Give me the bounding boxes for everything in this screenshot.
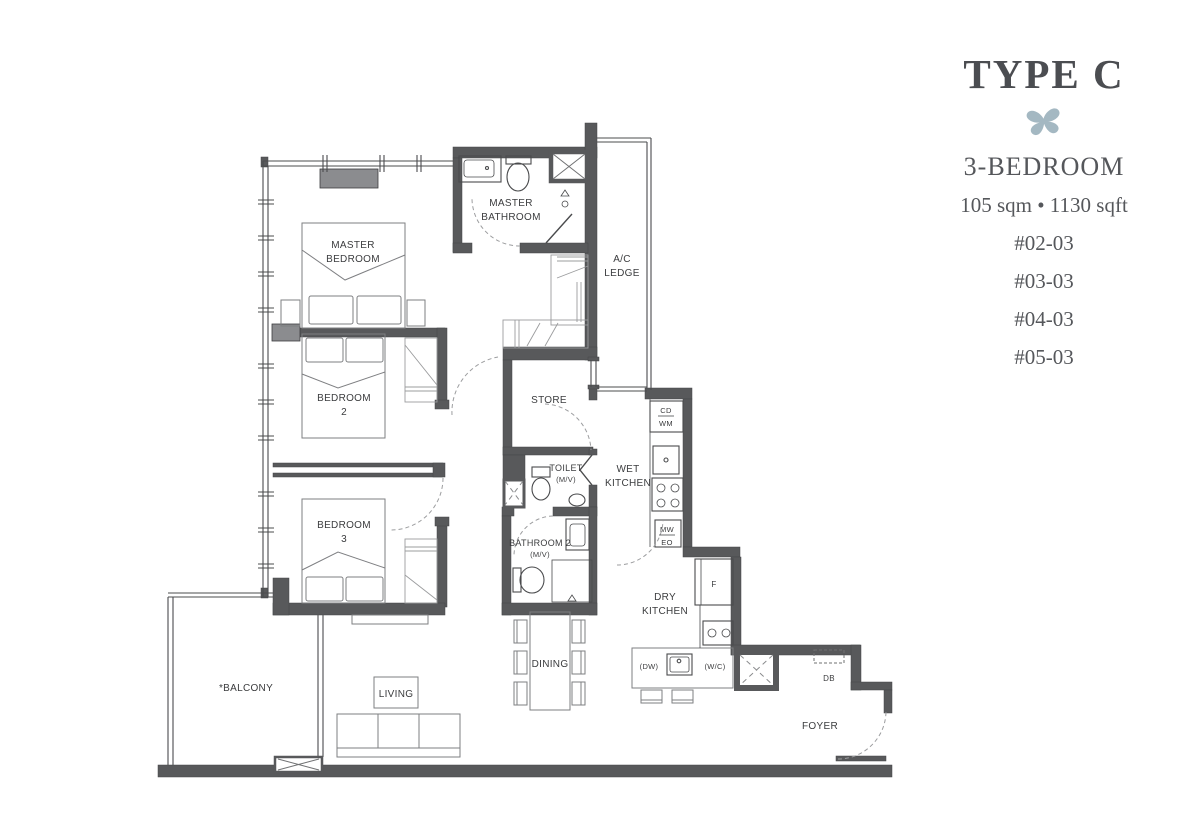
unit-number: #02-03	[948, 231, 1140, 256]
label-foyer: FOYER	[802, 721, 838, 732]
label-store: STORE	[531, 395, 567, 406]
label-bedroom3: BEDROOM	[317, 520, 371, 531]
svg-text:2: 2	[341, 407, 347, 418]
label-balcony: *BALCONY	[219, 683, 273, 694]
floor-plan-page: MASTER BEDROOM MASTER BATHROOM A/C LEDGE…	[0, 0, 1200, 840]
sofa	[337, 714, 460, 757]
label-wet-kitchen: WET	[616, 464, 639, 475]
unit-number: #05-03	[948, 345, 1140, 370]
wet-kitchen-door-arc	[617, 521, 663, 565]
svg-text:LEDGE: LEDGE	[604, 268, 639, 279]
svg-text:(M/V): (M/V)	[556, 475, 576, 484]
bedroom2-wardrobe	[405, 338, 437, 402]
label-toilet: TOILET	[549, 463, 582, 473]
svg-text:KITCHEN: KITCHEN	[642, 606, 688, 617]
label-fridge: F	[711, 580, 716, 589]
label-dining: DINING	[532, 659, 569, 670]
label-db: DB	[823, 674, 835, 683]
label-master-bedroom: MASTER	[331, 240, 374, 251]
master-bed	[281, 223, 425, 328]
master-wardrobe	[503, 255, 588, 348]
svg-text:(M/V): (M/V)	[530, 550, 550, 559]
unit-number: #04-03	[948, 307, 1140, 332]
unit-type-title: TYPE C	[948, 50, 1140, 98]
store-door-arc	[545, 404, 591, 450]
bedroom3-bed	[302, 499, 385, 603]
label-wm: WM	[659, 419, 673, 428]
svg-text:BEDROOM: BEDROOM	[326, 254, 380, 265]
master-suite-door-arc	[452, 357, 498, 415]
label-mw: MW	[660, 525, 675, 534]
master-bath-sink	[459, 156, 501, 182]
label-bathroom2: BATHROOM 2	[509, 538, 571, 548]
label-wc: (W/C)	[704, 662, 725, 671]
shower-drain	[562, 201, 568, 207]
unit-area: 105 sqm • 1130 sqft	[948, 193, 1140, 218]
window-ticks-left	[258, 200, 274, 568]
label-cd: CD	[660, 406, 672, 415]
entrance-door-arc	[838, 711, 886, 759]
label-dishwasher: (DW)	[640, 662, 659, 671]
bedroom3-wardrobe	[405, 539, 437, 603]
wc-sink	[569, 494, 585, 506]
label-living: LIVING	[379, 689, 414, 700]
svg-text:KITCHEN: KITCHEN	[605, 478, 651, 489]
wet-kitchen-hob	[652, 478, 683, 511]
label-ac-ledge: A/C	[613, 254, 631, 265]
island-sink	[667, 654, 692, 675]
shower-door	[546, 214, 572, 243]
label-bedroom2: BEDROOM	[317, 393, 371, 404]
tv-console	[352, 615, 428, 624]
label-master-bathroom: MASTER	[489, 198, 532, 209]
bedroom2-bed	[302, 334, 385, 438]
unit-number: #03-03	[948, 269, 1140, 294]
label-eo: EO	[661, 538, 672, 547]
label-dry-kitchen: DRY	[654, 592, 676, 603]
unit-info-panel: TYPE C 3-BEDROOM 105 sqm • 1130 sqft #02…	[948, 50, 1140, 370]
butterfly-icon	[948, 106, 1140, 140]
entrance-door-leaf	[836, 756, 886, 761]
shower-head	[561, 190, 569, 196]
bedroom-type: 3-BEDROOM	[948, 152, 1140, 182]
bathroom2-fixtures	[513, 519, 592, 602]
svg-text:BATHROOM: BATHROOM	[481, 212, 540, 223]
svg-text:3: 3	[341, 534, 347, 545]
dry-kitchen-hob	[703, 621, 733, 645]
wet-kitchen-sink	[653, 446, 679, 474]
master-bath-toilet	[506, 156, 531, 191]
